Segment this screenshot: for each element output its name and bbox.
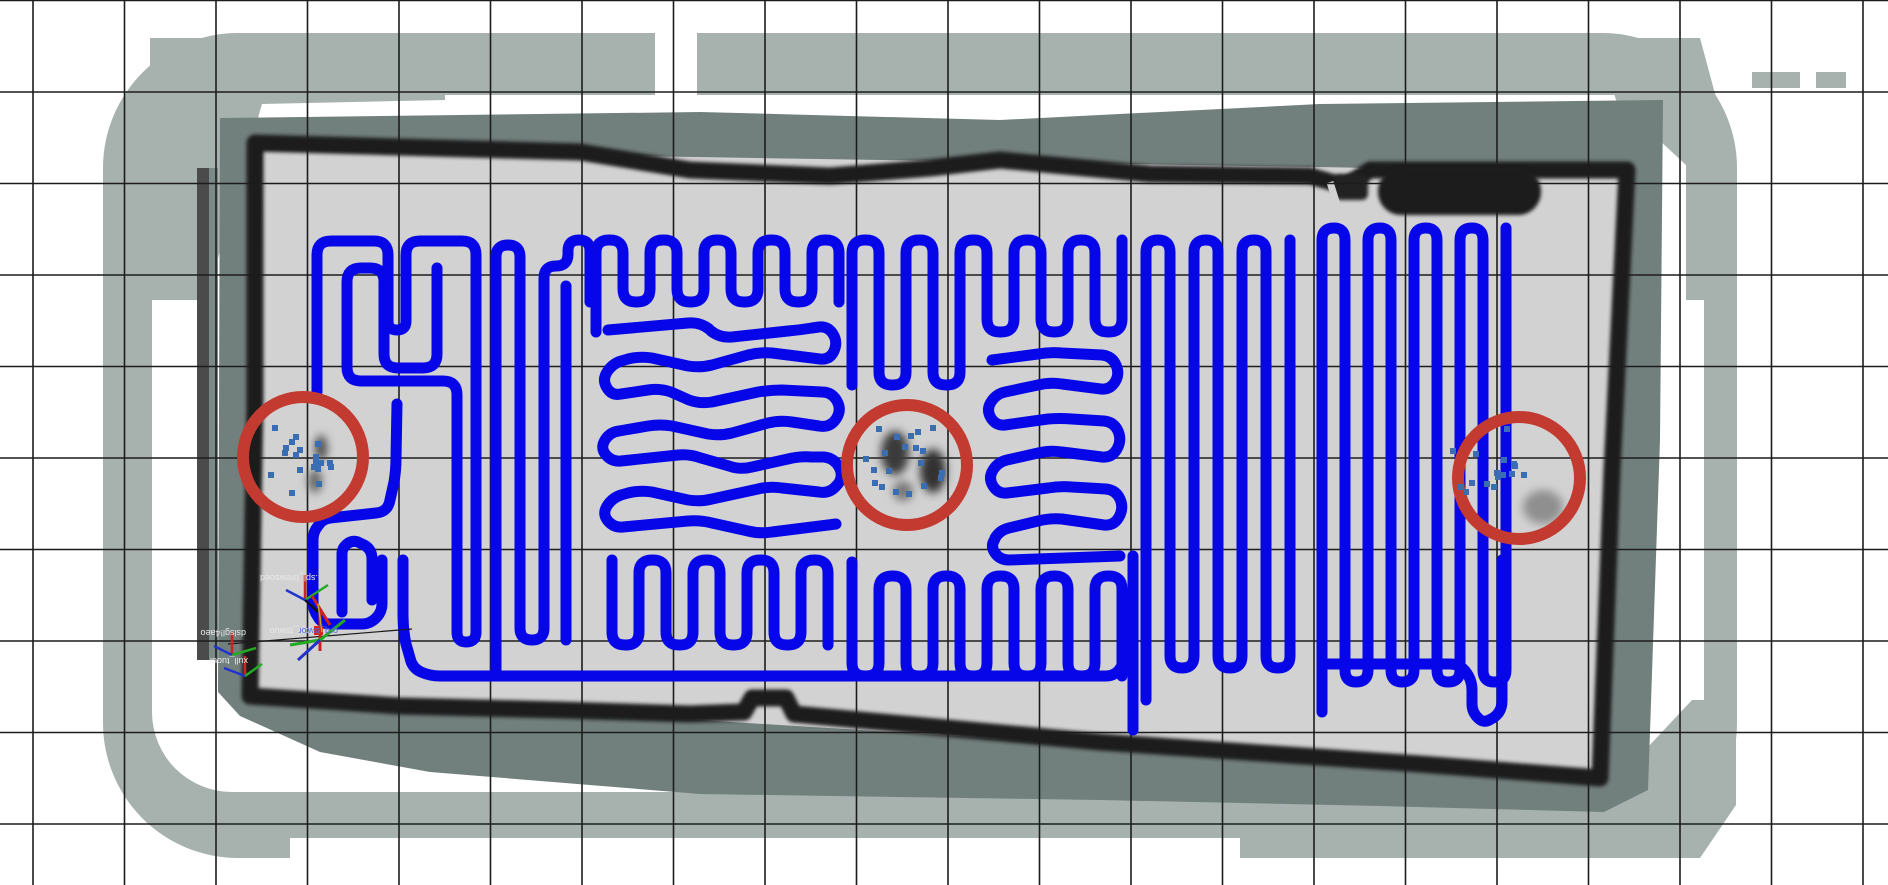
svg-text:xull_tuoul: xull_tuoul xyxy=(210,656,248,666)
svg-text:orq_tswor: orq_tswor xyxy=(298,626,338,636)
svg-text:dslsgl!4aeo: dslsgl!4aeo xyxy=(200,628,246,638)
svg-text:.spl_brewsoed: .spl_brewsoed xyxy=(260,573,318,583)
